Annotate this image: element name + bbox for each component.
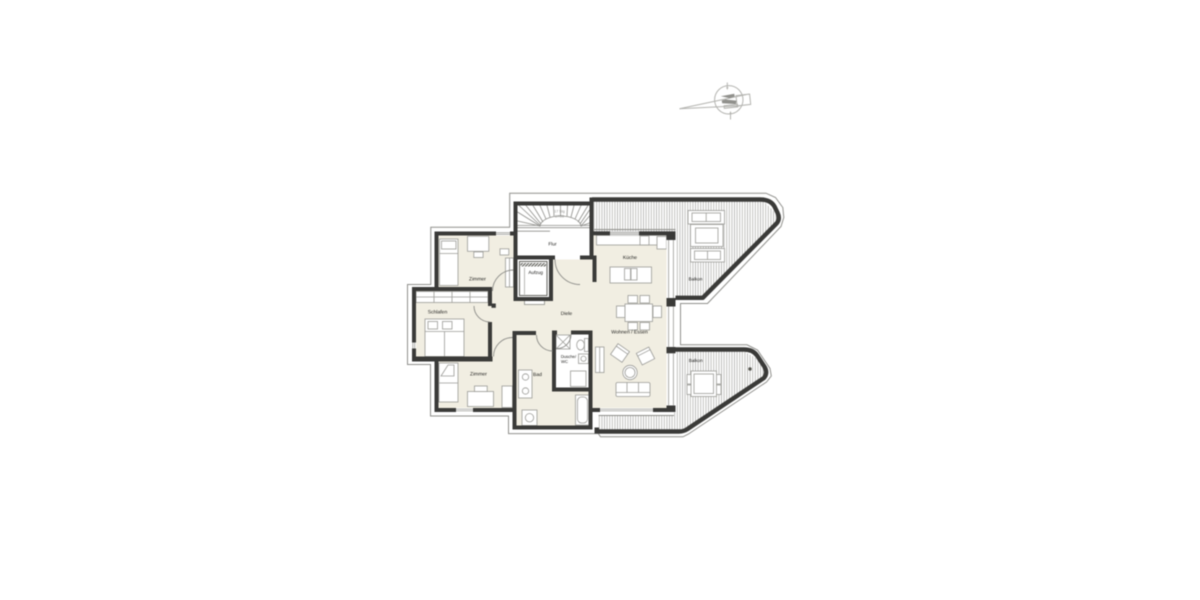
svg-text:Balkon: Balkon	[689, 358, 703, 363]
svg-text:Küche: Küche	[623, 255, 637, 261]
svg-text:Zimmer: Zimmer	[469, 277, 486, 283]
svg-text:Bad: Bad	[533, 372, 542, 378]
svg-text:Aufzug: Aufzug	[528, 270, 543, 275]
svg-text:Wohnen / Essen: Wohnen / Essen	[611, 330, 648, 336]
svg-text:17/28: 17/28	[555, 215, 564, 219]
svg-text:Schlafen: Schlafen	[428, 310, 448, 316]
svg-text:Balkon: Balkon	[689, 276, 703, 281]
svg-text:WC: WC	[561, 359, 568, 364]
svg-text:Zimmer: Zimmer	[470, 372, 487, 378]
svg-text:Flur: Flur	[548, 242, 557, 248]
svg-text:Diele: Diele	[561, 311, 573, 317]
svg-text:17 Stg: 17 Stg	[554, 210, 564, 214]
